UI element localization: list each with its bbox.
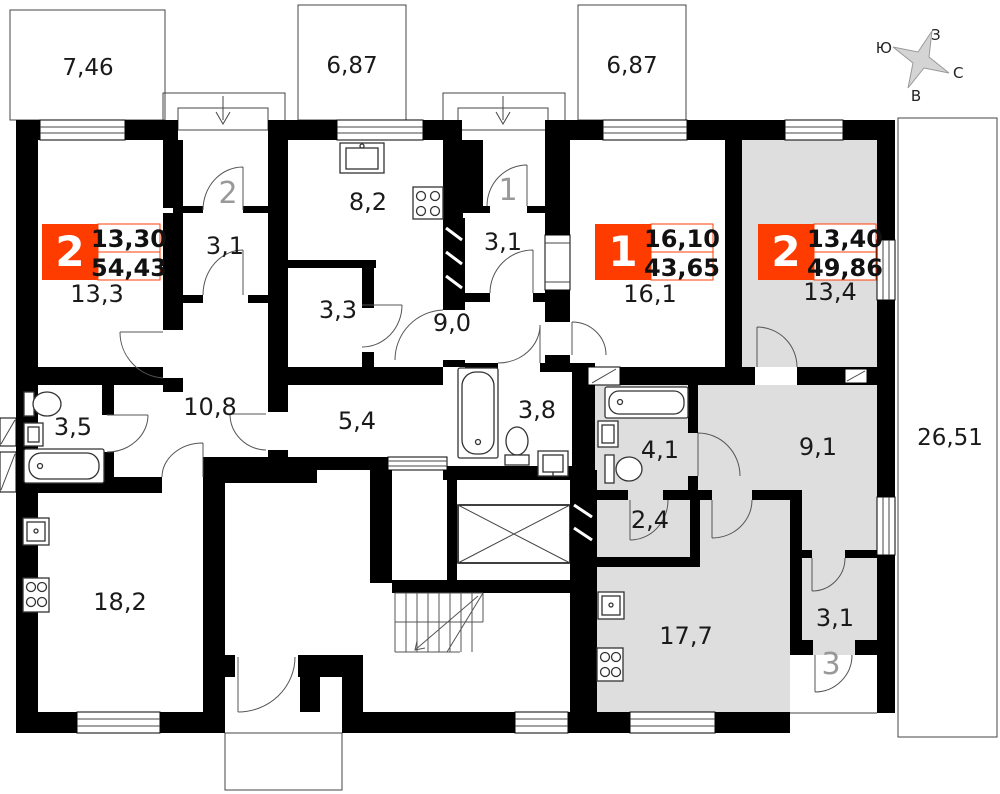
room-area-label: 3,1: [484, 228, 522, 256]
compass-east-label: В: [911, 87, 921, 105]
balcony-area-label: 26,51: [917, 425, 983, 451]
window-bottom-1: [77, 712, 160, 733]
room-area-label: 5,4: [338, 407, 376, 435]
window-top-4: [785, 120, 843, 140]
entrance-label: 1: [498, 173, 517, 208]
sink-icon: [538, 451, 568, 476]
compass-south-label: Ю: [876, 39, 892, 57]
apartment-total-area: 49,86: [807, 254, 883, 282]
compass-west-label: З: [931, 26, 941, 44]
stove-icon: [23, 578, 49, 612]
kitchen-sink-icon: [340, 143, 384, 173]
stove-icon: [597, 648, 623, 681]
room-area-label: 10,8: [183, 393, 236, 421]
room-area-label: 2,4: [631, 506, 669, 534]
room-area-label: 16,1: [623, 280, 676, 308]
apartment-number: 2: [55, 227, 84, 276]
bathtub-icon: [605, 387, 688, 418]
room-area-label: 9,0: [433, 309, 471, 337]
window-bottom-2: [515, 712, 568, 733]
kitchen-sink-icon: [23, 518, 49, 545]
elevator-shaft: [458, 505, 570, 563]
stove-icon: [413, 187, 443, 219]
compass-north-label: С: [953, 64, 963, 82]
room-area-label: 9,1: [799, 433, 837, 461]
balcony-area-label: 6,87: [326, 53, 377, 79]
room-area-label: 8,2: [349, 188, 387, 216]
apartment-living-area: 16,10: [644, 225, 720, 253]
toilet-icon: [505, 427, 529, 465]
apartment-number: 2: [771, 227, 800, 276]
room-area-label: 18,2: [93, 588, 146, 616]
apartment-living-area: 13,40: [807, 225, 883, 253]
bathtub-icon: [24, 449, 104, 483]
room-area-label: 17,7: [659, 622, 712, 650]
apartment-total-area: 54,43: [91, 254, 167, 282]
apartment-number: 1: [608, 227, 637, 276]
kitchen-sink-icon: [598, 592, 624, 619]
sink-icon: [24, 423, 43, 446]
apartment-badge: 1 16,10 43,65: [595, 224, 720, 282]
window-right-2: [877, 497, 895, 555]
room-area-label: 3,8: [518, 396, 556, 424]
apartment-living-area: 13,30: [91, 225, 167, 253]
room-area-label: 3,1: [206, 232, 244, 260]
room-area-label: 3,3: [319, 296, 357, 324]
room-area-label: 3,5: [54, 413, 92, 441]
bathtub-icon: [458, 368, 498, 458]
sink-icon: [598, 421, 618, 447]
entrance-label: 2: [218, 176, 237, 211]
entrance-label: 3: [821, 647, 840, 682]
room-area-label: 3,1: [816, 604, 854, 632]
floor-plan: 13,3 3,1 8,2 3,3 9,0 3,1 16,1 13,4 3,5 1…: [0, 0, 1000, 794]
apartment-badge: 2 13,40 49,86: [758, 224, 883, 282]
window-bottom-3: [630, 712, 715, 733]
room-area-label: 13,3: [70, 280, 123, 308]
vent-boxes-left: [0, 418, 16, 492]
toilet-icon: [605, 455, 642, 483]
window-top-1: [40, 120, 125, 140]
balcony-area-label: 6,87: [606, 53, 657, 79]
room-area-label: 4,1: [641, 436, 679, 464]
window-top-2: [337, 120, 423, 140]
window-top-3: [603, 120, 687, 140]
room-area-label: 13,4: [803, 278, 856, 306]
balcony-area-label: 7,46: [62, 55, 113, 81]
apartment-total-area: 43,65: [644, 254, 720, 282]
apartment-badge: 2 13,30 54,43: [42, 224, 167, 282]
